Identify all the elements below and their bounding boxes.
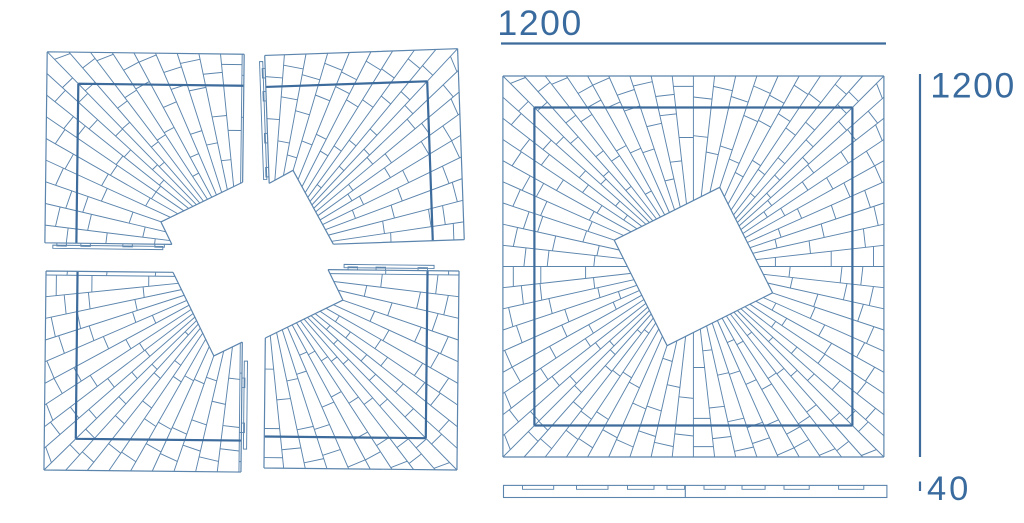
svg-text:40: 40 xyxy=(927,470,971,508)
svg-text:1200: 1200 xyxy=(931,65,1016,105)
svg-text:1200: 1200 xyxy=(498,3,583,43)
